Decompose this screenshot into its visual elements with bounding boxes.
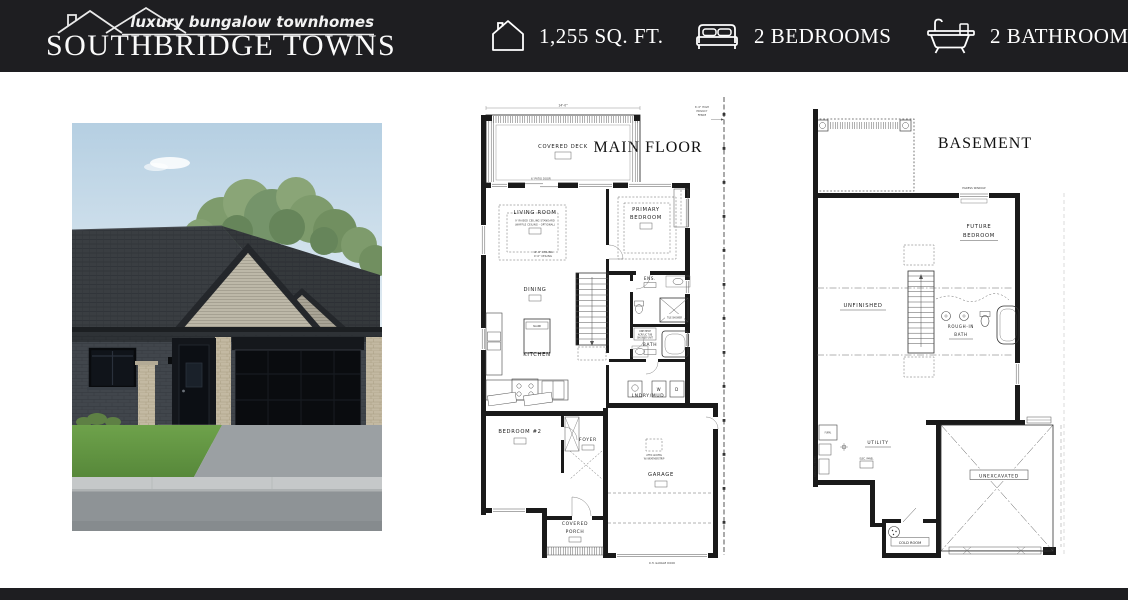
living-room-label: LIVING ROOM	[514, 210, 557, 216]
basement-stairs	[904, 245, 934, 377]
stone-column-left	[215, 337, 231, 428]
tankless-heater-label: TANKLESS HEATER	[814, 456, 817, 477]
kitchen-label: KITCHEN	[523, 352, 550, 358]
stairs	[576, 273, 608, 360]
front-window	[87, 349, 138, 390]
basement-plan: BASEMENT EGRESS WINDOW	[803, 95, 1070, 572]
future-bedroom-label-2: BEDROOM	[963, 233, 995, 239]
main-floor-plan: MAIN FLOOR 14'-0" COVERED DECK	[478, 95, 730, 567]
brand-logo: luxury bungalow townhomes SOUTHBRIDGE TO…	[44, 4, 374, 68]
stone-column-right	[366, 337, 382, 428]
deck-above-outline	[816, 119, 914, 191]
window-spec-callouts	[487, 392, 552, 406]
unfinished-label: UNFINISHED	[843, 303, 882, 309]
house-rendering	[72, 123, 382, 531]
living-note-1: 9' RAISED CEILING STANDARD	[515, 220, 555, 223]
stat-sqft-label: 1,255 SQ. FT.	[539, 24, 664, 49]
house-icon	[490, 17, 526, 55]
utility-fixtures: FURN. TANKLESS HEATER ELEC. PANEL	[814, 425, 874, 477]
ensuite-fixtures: TILE SHOWER	[635, 276, 691, 322]
living-note-2: (WAFFLE CEILING - OPTIONAL)	[515, 224, 555, 227]
living-ceiling-1: 10'-0" CEILING	[533, 251, 553, 254]
garage-door	[232, 337, 364, 427]
bathtub-icon	[925, 16, 977, 56]
laundry-label: LNDRY/MUD	[632, 393, 665, 399]
front-door	[168, 338, 216, 428]
ensuite-label: ENS.	[644, 276, 656, 281]
stat-bedrooms-label: 2 BEDROOMS	[754, 24, 891, 49]
bed-icon	[693, 17, 741, 55]
basement-walls	[813, 109, 1056, 558]
bath-fixtures: ONE PIECE ACRYLIC TUB SHOWER UNIT	[632, 328, 688, 357]
stat-square-footage: 1,255 SQ. FT.	[490, 0, 664, 72]
tub-note-3: SHOWER UNIT	[637, 337, 653, 340]
rough-in-label-1: ROUGH-IN	[948, 324, 974, 329]
furnace-label: FURN.	[825, 432, 832, 435]
utility-label: UTILITY	[867, 440, 888, 446]
driveway	[194, 425, 382, 477]
stat-bedrooms: 2 BEDROOMS	[693, 0, 891, 72]
primary-bedroom-label-2: BEDROOM	[630, 215, 662, 221]
patio-door-note: 6' PATIO DOOR	[531, 178, 551, 181]
washer-label: W	[657, 387, 662, 392]
stat-bathrooms-label: 2 BATHROOMS	[990, 24, 1128, 49]
interior-walls	[561, 188, 690, 473]
basement-labels: FUTURE BEDROOM UNFINISHED ROUGH-IN BATH …	[840, 224, 998, 447]
room-labels: LIVING ROOM 9' RAISED CEILING STANDARD (…	[498, 207, 674, 542]
bath-label: BATH	[643, 342, 657, 348]
fence-note-3: FENCE	[698, 114, 707, 117]
tile-shower-note: TILE SHOWER	[667, 317, 683, 320]
unexcavated-area: UNEXCAVATED	[941, 417, 1061, 554]
dryer-label: D	[675, 387, 679, 392]
attic-note-2: W/ WEATHERSTRIP	[644, 458, 665, 461]
porch-light	[168, 357, 172, 364]
foyer-label: FOYER	[579, 437, 597, 443]
covered-porch-label-1: COVERED	[562, 521, 588, 527]
covered-porch-label-2: PORCH	[566, 529, 585, 535]
basement-title: BASEMENT	[938, 135, 1032, 152]
road-shade	[72, 521, 382, 531]
primary-bedroom-label-1: PRIMARY	[632, 207, 660, 213]
porch-pillar	[135, 361, 158, 425]
covered-deck-label: COVERED DECK	[538, 144, 588, 150]
fence-note-2: PRIVACY	[696, 110, 707, 113]
stat-bathrooms: 2 BATHROOMS	[925, 0, 1128, 72]
window-openings: 6' PATIO DOOR	[481, 178, 690, 515]
garage-door-note: O.H. GARAGE DOOR	[649, 562, 675, 565]
dining-label: DINING	[523, 287, 546, 293]
fascia	[72, 327, 382, 332]
cold-room-label: COLD ROOM	[899, 541, 922, 545]
egress-window-note: EGRESS WINDOW	[962, 187, 986, 190]
soffit-shadow	[72, 332, 382, 335]
bedroom2-label: BEDROOM #2	[498, 429, 541, 435]
future-bedroom-label-1: FUTURE	[967, 224, 992, 230]
main-floor-title: MAIN FLOOR	[593, 139, 702, 156]
unexcavated-label: UNEXCAVATED	[979, 474, 1019, 480]
elec-panel-label: ELEC. PANEL	[860, 458, 875, 461]
garage-label: GARAGE	[648, 472, 674, 478]
rough-in-label-2: BATH	[954, 332, 967, 337]
fence-note-1: 6'-0" HIGH	[695, 106, 709, 109]
brand-name: SOUTHBRIDGE TOWNS	[46, 29, 396, 63]
exterior-walls	[481, 115, 718, 558]
footer-bar	[0, 588, 1128, 600]
island-label: ISLAND	[533, 325, 541, 328]
deck-width-dim: 14'-0"	[558, 104, 568, 108]
privacy-fence: 6'-0" HIGH PRIVACY FENCE	[695, 97, 725, 555]
header-bar: luxury bungalow townhomes SOUTHBRIDGE TO…	[0, 0, 1128, 72]
cold-room: COLD ROOM	[889, 527, 930, 547]
door-openings	[561, 245, 718, 559]
porch-hatch	[547, 547, 603, 555]
sidewalk	[72, 477, 382, 492]
living-ceiling-2: 9'-0" CEILING	[534, 255, 552, 258]
